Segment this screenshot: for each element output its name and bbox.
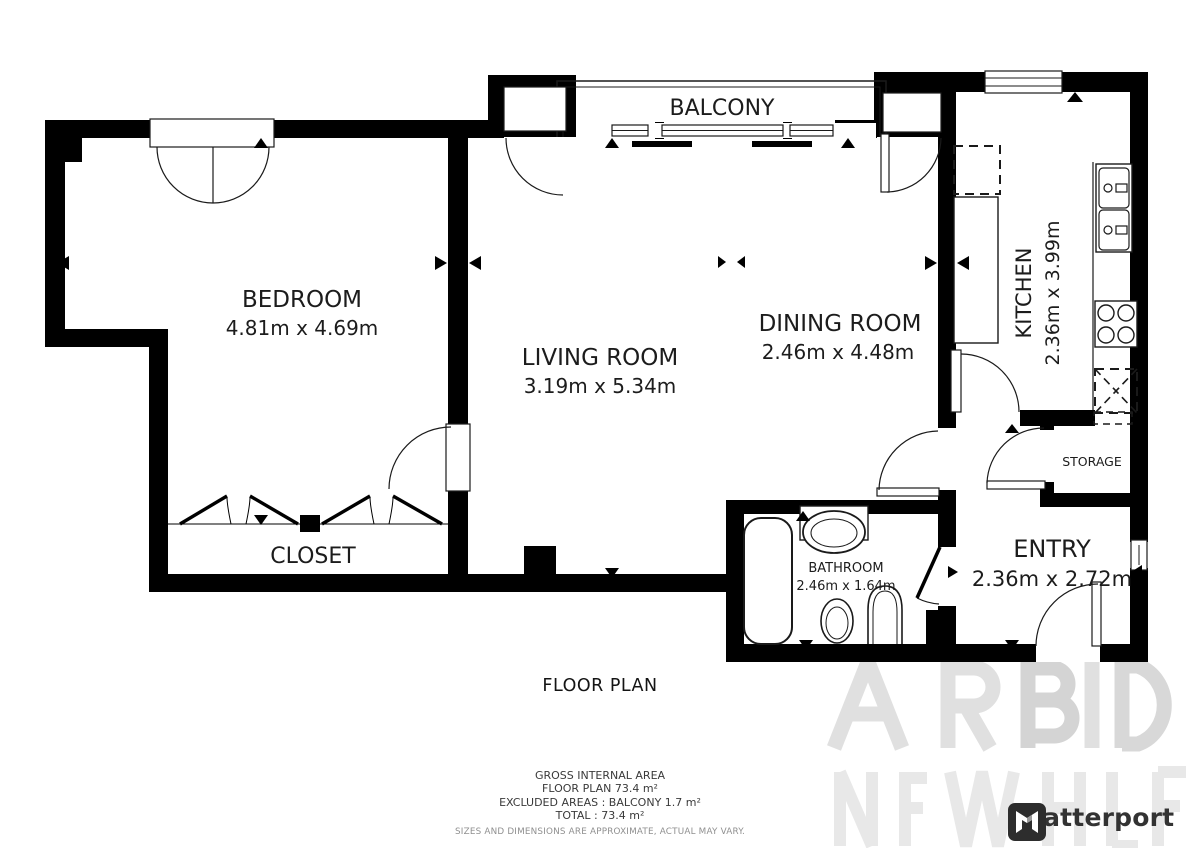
label-kitchen-dims: 2.36m x 3.99m [1042,221,1064,366]
label-kitchen: KITCHEN [1012,248,1036,339]
label-entry-dims: 2.36m x 2.72m [972,567,1132,591]
kitchen-appliance-dashed [954,146,1000,194]
label-bathroom: BATHROOM [808,561,883,576]
floor-plan-drawing: BEDROOM 4.81m x 4.69m LIVING ROOM 3.19m … [0,0,1200,848]
gross-internal-area-heading: GROSS INTERNAL AREA [0,769,1200,782]
bathtub [744,518,792,644]
matterport-logo: Matterport [1008,803,1174,832]
label-balcony: BALCONY [670,96,776,121]
label-bedroom-dims: 4.81m x 4.69m [226,316,379,340]
floor-plan-page: BEDROOM 4.81m x 4.69m LIVING ROOM 3.19m … [0,0,1200,848]
label-bathroom-dims: 2.46m x 1.64m [796,579,895,594]
label-living-room: LIVING ROOM [522,345,679,371]
label-dining-room-dims: 2.46m x 4.48m [762,340,915,364]
matterport-icon [1008,803,1046,841]
room-labels: BEDROOM 4.81m x 4.69m LIVING ROOM 3.19m … [226,96,1132,594]
label-dining-room: DINING ROOM [759,311,922,337]
label-bedroom: BEDROOM [242,287,362,313]
label-storage: STORAGE [1062,454,1122,469]
bathroom-door-leaf [917,547,940,598]
label-closet: CLOSET [270,544,356,569]
living-windows [576,123,876,138]
kitchen-counter-left [954,197,998,343]
label-entry: ENTRY [1013,535,1091,563]
plan-title: FLOOR PLAN [0,676,1200,696]
floor-plan-area-line: FLOOR PLAN 73.4 m² [0,782,1200,795]
label-living-room-dims: 3.19m x 5.34m [524,374,677,398]
